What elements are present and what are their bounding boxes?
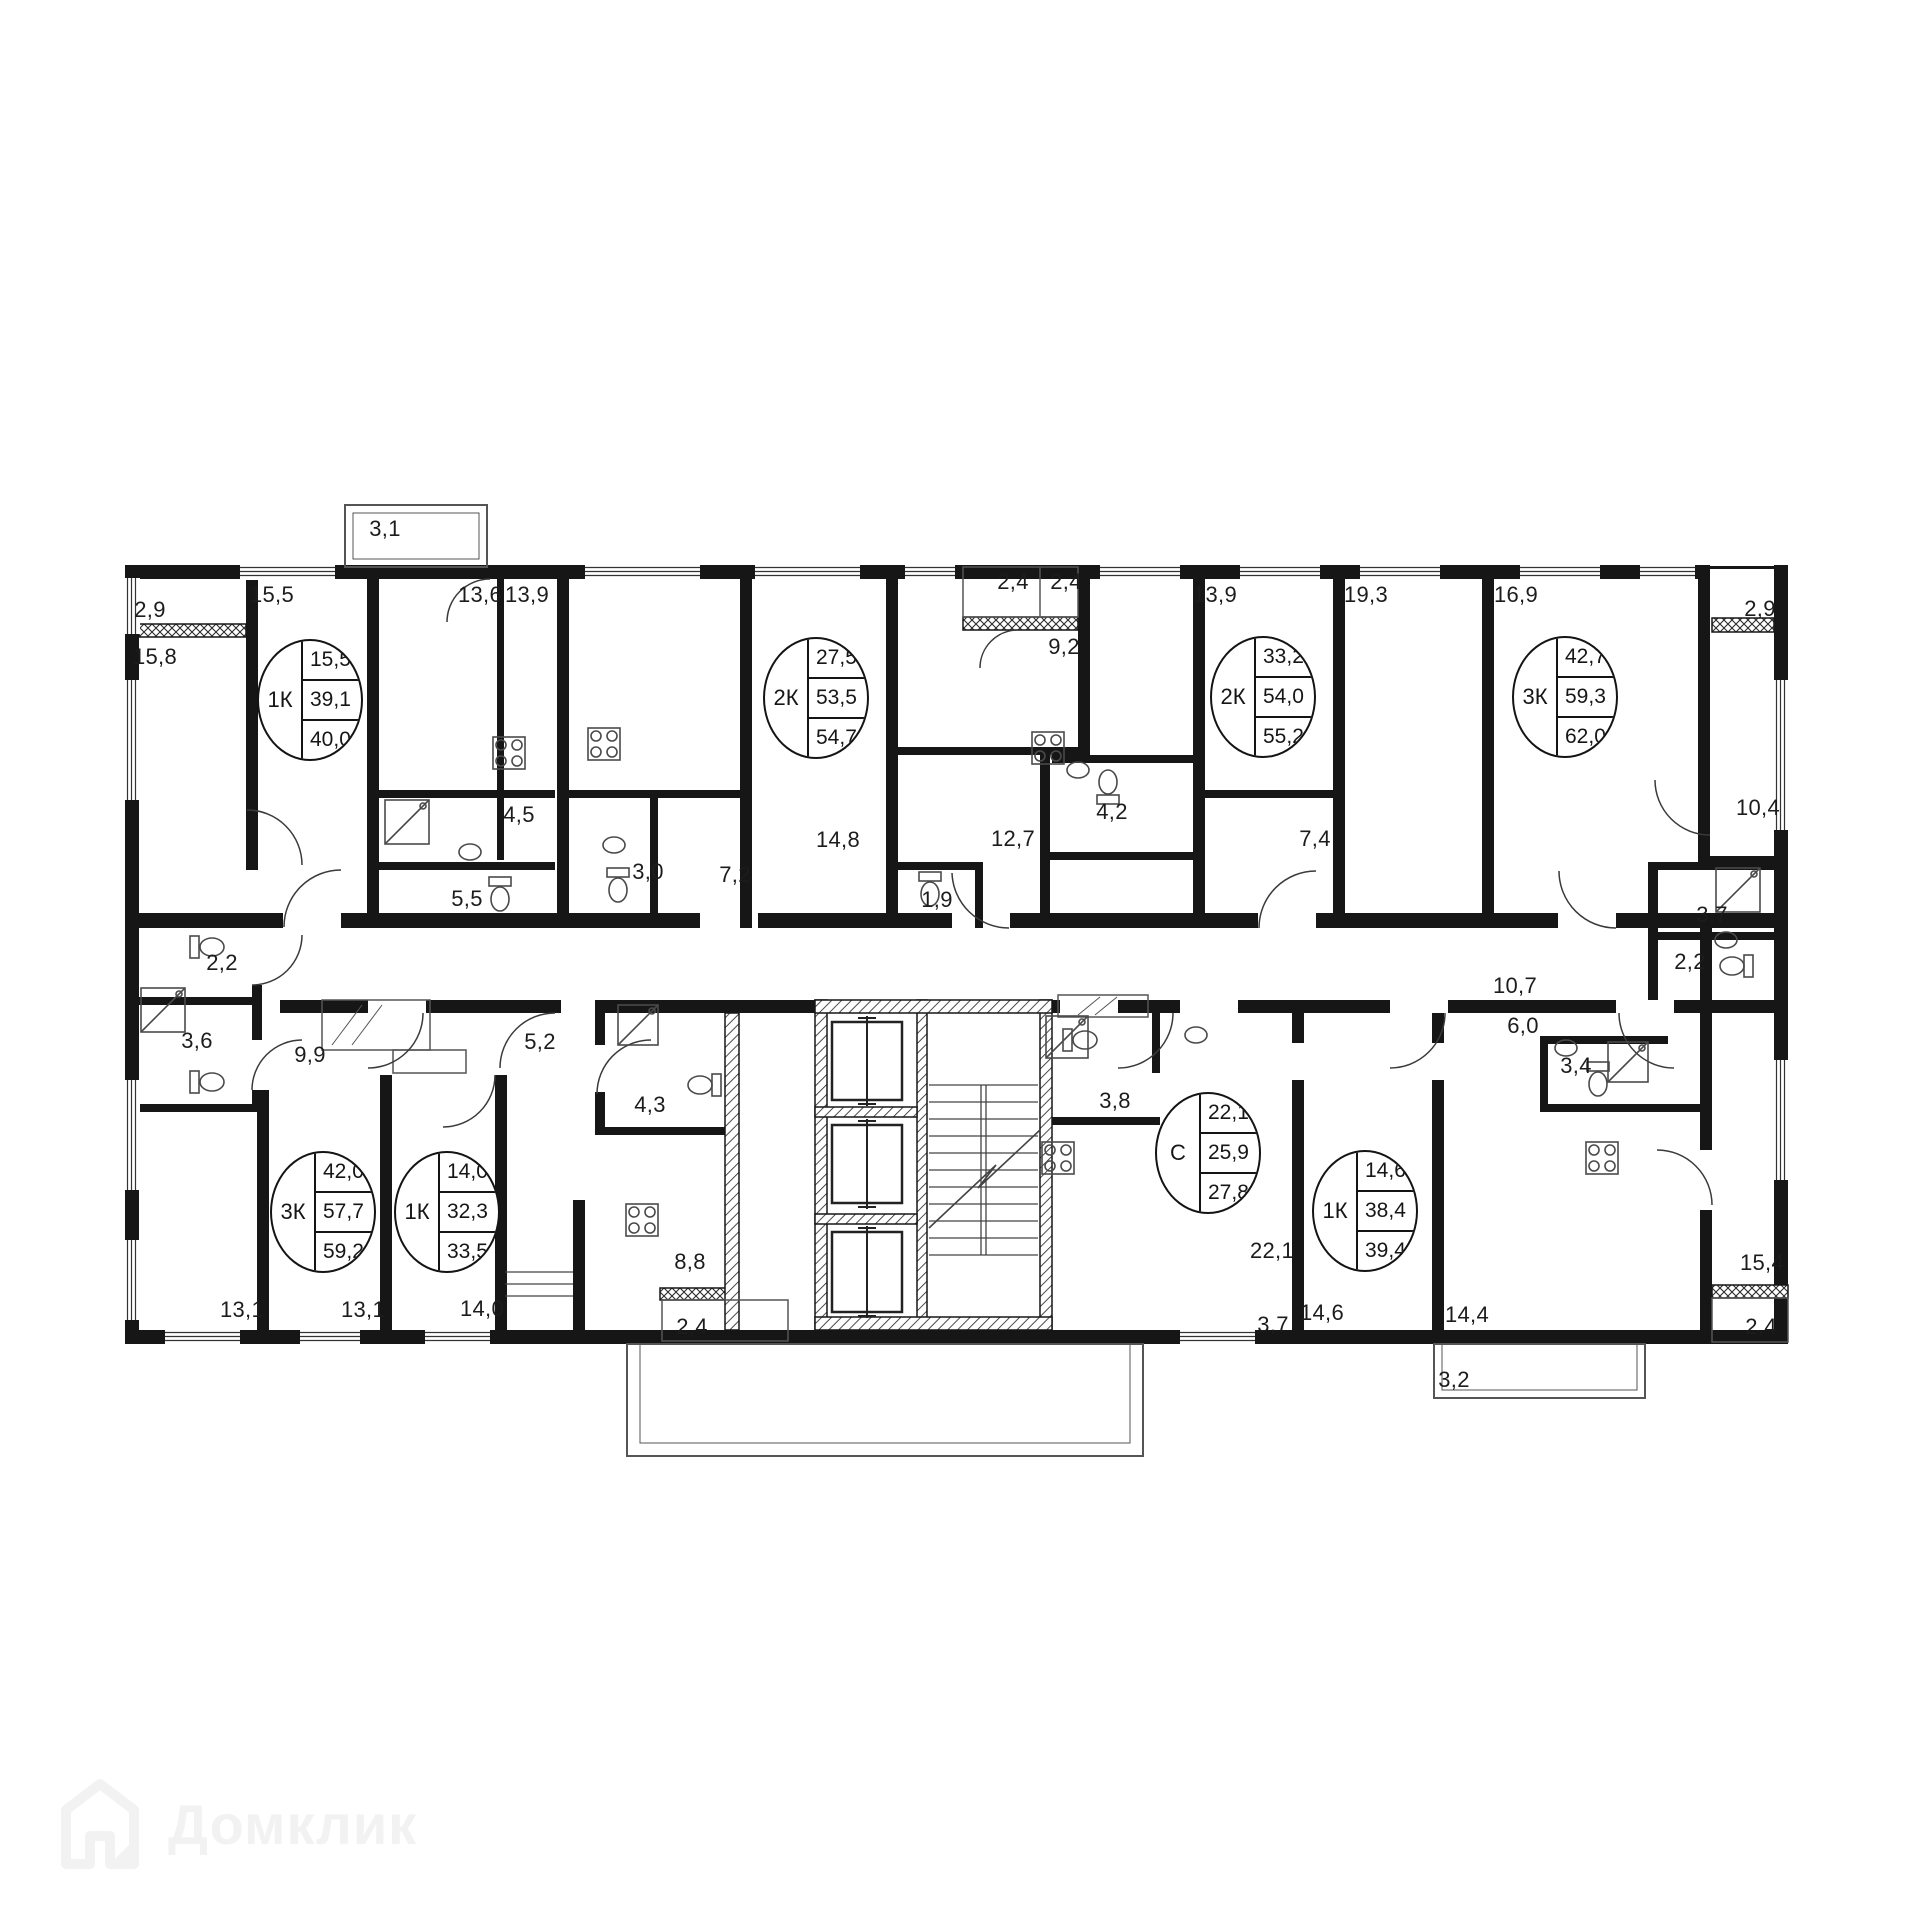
domclick-watermark: Домклик [58,1778,417,1870]
room-area-label: 2,4 [997,569,1028,595]
apartment-area-value: 25,9 [1201,1134,1259,1174]
floor-plan-drawing [0,0,1920,1920]
apartment-type: 2К [1212,638,1254,756]
room-area-label: 3,2 [1438,1367,1469,1393]
apartment-type: 1К [259,641,301,759]
apartment-area-value: 53,5 [809,679,867,719]
apartment-area-values: 42,759,362,0 [1558,638,1616,756]
room-area-label: 3,6 [181,1028,212,1054]
apartment-area-value: 33,2 [1256,638,1314,678]
apartment-area-values: 27,553,554,7 [809,639,867,757]
apartment-area-values: 14,638,439,4 [1358,1152,1416,1270]
elevator-icon [832,1016,902,1318]
room-area-label: 3,8 [1099,1088,1130,1114]
room-area-label: 14,4 [1445,1302,1489,1328]
room-area-label: 19,3 [1344,582,1388,608]
apartment-area-value: 54,0 [1256,678,1314,718]
shower-icon [141,800,1760,1082]
room-area-label: 14,6 [1300,1300,1344,1326]
room-area-label: 2,2 [1674,949,1705,975]
room-area-label: 13,9 [1193,582,1237,608]
apartment-area-value: 55,2 [1256,718,1314,756]
apartment-type: 2К [765,639,807,757]
apartment-type: 3К [272,1153,314,1271]
apartment-badge[interactable]: 3К42,759,362,0 [1512,636,1618,758]
apartment-area-values: 22,125,927,8 [1201,1094,1259,1212]
apartment-type: 1К [396,1153,438,1271]
room-area-label: 10,4 [1736,795,1780,821]
apartment-area-value: 59,3 [1558,678,1616,718]
room-area-label: 13,1 [341,1297,385,1323]
room-area-label: 3,0 [632,859,663,885]
apartment-area-values: 15,539,140,0 [303,641,361,759]
room-area-label: 3,4 [1560,1053,1591,1079]
room-area-label: 2,9 [1744,596,1775,622]
domclick-house-icon [58,1778,142,1870]
apartment-badge[interactable]: 3К42,057,759,2 [270,1151,376,1273]
room-area-label: 2,4 [1745,1314,1776,1340]
apartment-area-value: 39,1 [303,681,361,721]
apartment-area-value: 57,7 [316,1193,374,1233]
room-area-label: 14,8 [816,827,860,853]
apartment-area-value: 14,0 [440,1153,498,1193]
room-area-label: 5,2 [524,1029,555,1055]
room-area-label: 13,1 [220,1297,264,1323]
room-area-label: 7,2 [719,862,750,888]
room-area-label: 15,4 [1740,1250,1784,1276]
room-area-label: 9,2 [1048,634,1079,660]
room-area-label: 3,7 [1257,1312,1288,1338]
apartment-type: С [1157,1094,1199,1212]
apartment-area-value: 27,8 [1201,1174,1259,1212]
domclick-watermark-text: Домклик [168,1792,417,1857]
floorplan-page: 2,915,815,53,113,613,92,42,49,213,919,31… [0,0,1920,1920]
apartment-area-value: 62,0 [1558,718,1616,756]
apartment-area-value: 27,5 [809,639,867,679]
apartment-badge[interactable]: 1К14,638,439,4 [1312,1150,1418,1272]
apartment-area-values: 14,032,333,5 [440,1153,498,1271]
room-area-label: 4,5 [503,802,534,828]
room-area-label: 2,4 [676,1314,707,1340]
apartment-type: 3К [1514,638,1556,756]
apartment-area-value: 33,5 [440,1233,498,1271]
apartment-area-value: 42,7 [1558,638,1616,678]
room-area-label: 1,9 [921,887,952,913]
apartment-badge[interactable]: С22,125,927,8 [1155,1092,1261,1214]
stove-icon [493,728,1618,1236]
apartment-area-values: 33,254,055,2 [1256,638,1314,756]
room-area-label: 16,9 [1494,582,1538,608]
apartment-area-value: 59,2 [316,1233,374,1271]
apartment-area-values: 42,057,759,2 [316,1153,374,1271]
room-area-label: 13,9 [505,582,549,608]
apartment-badge[interactable]: 2К27,553,554,7 [763,637,869,759]
room-area-label: 2,2 [206,950,237,976]
room-area-label: 22,1 [1250,1238,1294,1264]
room-area-label: 7,4 [1299,826,1330,852]
toilet-icon [190,770,1753,1096]
room-area-label: 10,7 [1493,973,1537,999]
room-area-label: 6,0 [1507,1013,1538,1039]
room-area-label: 13,6 [458,582,502,608]
apartment-badge[interactable]: 1К14,032,333,5 [394,1151,500,1273]
room-area-label: 4,3 [634,1092,665,1118]
room-area-label: 2,4 [1050,569,1081,595]
apartment-area-value: 32,3 [440,1193,498,1233]
apartment-area-value: 38,4 [1358,1192,1416,1232]
room-area-label: 15,8 [133,644,177,670]
apartment-area-value: 14,6 [1358,1152,1416,1192]
room-area-label: 4,2 [1096,799,1127,825]
room-area-label: 5,5 [451,886,482,912]
apartment-type: 1К [1314,1152,1356,1270]
room-area-label: 2,9 [134,597,165,623]
room-area-label: 14,0 [460,1296,504,1322]
room-area-label: 9,9 [294,1042,325,1068]
apartment-area-value: 42,0 [316,1153,374,1193]
stairs-icon [505,1085,1040,1296]
apartment-area-value: 15,5 [303,641,361,681]
apartment-area-value: 40,0 [303,721,361,759]
room-area-label: 3,1 [369,516,400,542]
apartment-badge[interactable]: 1К15,539,140,0 [257,639,363,761]
apartment-area-value: 54,7 [809,719,867,757]
room-area-label: 3,7 [1696,902,1727,928]
room-area-label: 8,8 [674,1249,705,1275]
apartment-badge[interactable]: 2К33,254,055,2 [1210,636,1316,758]
apartment-area-value: 22,1 [1201,1094,1259,1134]
room-area-label: 15,5 [250,582,294,608]
room-area-label: 12,7 [991,826,1035,852]
apartment-area-value: 39,4 [1358,1232,1416,1270]
